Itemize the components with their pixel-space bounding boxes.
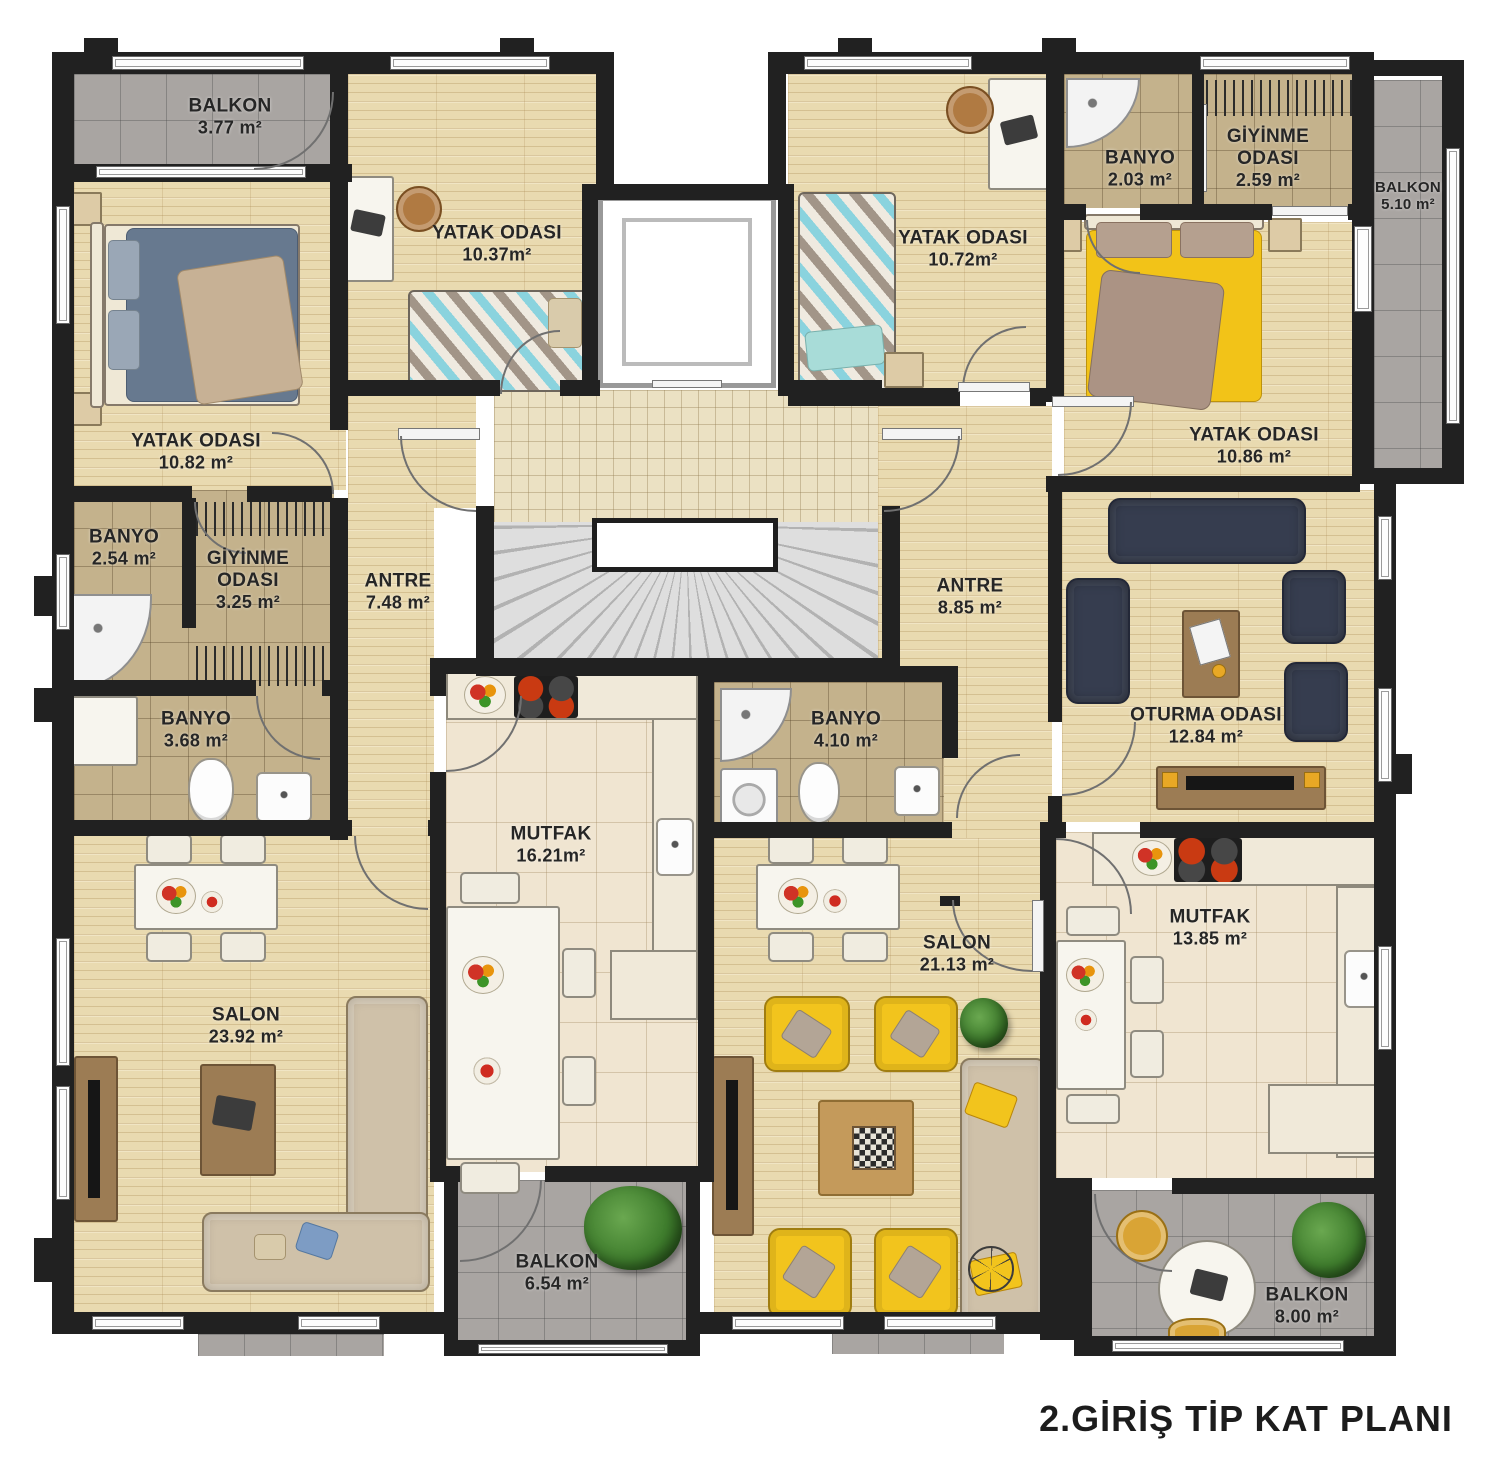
wall-segment <box>698 658 714 1182</box>
wall-segment <box>1046 52 1064 382</box>
window <box>298 1316 380 1330</box>
room-label-yatak-b2: YATAK ODASI 10.86 m² <box>1189 425 1319 468</box>
room-label-banyo-b1: BANYO 2.03 m² <box>1105 148 1175 191</box>
wall-segment <box>1048 492 1062 722</box>
pillow <box>108 310 140 370</box>
bed-blanket <box>1087 269 1226 411</box>
tv-screen <box>88 1080 100 1198</box>
chess-board <box>852 1126 896 1170</box>
tv-screen <box>1186 776 1294 790</box>
wall-segment <box>686 1166 700 1356</box>
wall-segment <box>714 822 952 838</box>
balcony-door <box>1354 226 1372 312</box>
window <box>1446 148 1460 424</box>
room-label-yatak-b1: YATAK ODASI 10.72m² <box>898 228 1028 271</box>
wall-segment <box>882 506 900 676</box>
room-balkon-b1-floor <box>1374 80 1442 474</box>
wall-segment <box>1352 60 1464 76</box>
room-label-yatak-a1: YATAK ODASI 10.82 m² <box>131 431 261 474</box>
wall-segment <box>596 52 614 198</box>
room-label-oturma: OTURMA ODASI 12.84 m² <box>1130 705 1282 748</box>
fruit-bowl <box>778 878 818 914</box>
fruit-bowl <box>462 956 504 994</box>
window <box>56 206 70 324</box>
door-leaf <box>1032 900 1044 972</box>
armchair-yellow <box>768 1228 852 1318</box>
window <box>732 1316 844 1330</box>
toilet <box>188 758 234 824</box>
pillow <box>254 1234 286 1260</box>
pillow <box>108 240 140 300</box>
armchair-yellow <box>764 996 850 1072</box>
fruit-bowl <box>1132 840 1172 876</box>
wall-segment <box>1140 822 1392 838</box>
window <box>1378 688 1392 782</box>
dining-chair <box>220 932 266 962</box>
window <box>1378 946 1392 1050</box>
wall-segment <box>1352 468 1464 484</box>
wall-segment <box>430 658 714 674</box>
room-label-balkon-tl: BALKON 3.77 m² <box>188 96 271 139</box>
wall-segment <box>560 380 600 396</box>
room-label-antre-b: ANTRE 8.85 m² <box>937 576 1004 619</box>
wall-segment <box>1192 74 1204 204</box>
wall-segment <box>582 184 794 200</box>
elevator-cabin <box>622 218 752 366</box>
room-label-banyo-a2: BANYO 3.68 m² <box>161 709 231 752</box>
wall-segment <box>348 380 500 396</box>
dining-chair <box>562 1056 596 1106</box>
armchair-yellow <box>874 1228 958 1318</box>
dining-chair <box>768 834 814 864</box>
wall-segment <box>1040 1178 1092 1340</box>
plate <box>1074 1008 1098 1032</box>
wall-segment <box>706 666 958 682</box>
wall-segment <box>444 1166 458 1356</box>
nightstand <box>1268 218 1302 252</box>
plant <box>1292 1202 1366 1278</box>
room-label-banyo-b2: BANYO 4.10 m² <box>811 709 881 752</box>
pilaster <box>1042 38 1076 56</box>
plate <box>200 890 224 914</box>
dining-chair <box>842 834 888 864</box>
window <box>1112 1340 1344 1352</box>
core-landing-floor <box>494 390 878 522</box>
dining-chair <box>562 948 596 998</box>
wall-segment <box>1046 476 1360 492</box>
window <box>478 1344 668 1354</box>
wall-segment <box>1030 388 1046 406</box>
dining-table <box>446 906 560 1160</box>
decor <box>1304 772 1320 788</box>
window <box>92 1316 184 1330</box>
pilaster <box>1394 754 1412 794</box>
room-label-balkon-b1: BALKON 5.10 m² <box>1370 179 1446 214</box>
bathtub <box>64 696 138 766</box>
stair-mid-landing <box>592 518 778 572</box>
dining-chair <box>146 834 192 864</box>
window <box>56 938 70 1066</box>
room-label-antre-a: ANTRE 7.48 m² <box>365 571 432 614</box>
window <box>96 166 306 178</box>
plate <box>822 888 848 914</box>
pilaster <box>838 38 872 56</box>
dining-chair <box>220 834 266 864</box>
sofa <box>1108 498 1306 564</box>
sink <box>894 766 940 816</box>
dining-chair <box>1130 1030 1164 1078</box>
dining-chair <box>1130 956 1164 1004</box>
room-label-giyinme-b: GİYİNME ODASI 2.59 m² <box>1205 126 1331 190</box>
wall-segment <box>1172 1178 1374 1194</box>
room-label-balkon-a2: BALKON 6.54 m² <box>515 1252 598 1295</box>
elevator-door <box>652 380 722 388</box>
wall-segment <box>942 682 958 758</box>
window <box>1200 56 1350 70</box>
wall-segment <box>778 198 794 388</box>
pillow <box>804 324 886 372</box>
bed-headboard <box>90 222 104 408</box>
wall-segment <box>582 198 598 388</box>
wall-segment <box>1374 474 1396 1356</box>
window <box>56 554 70 630</box>
wall-segment <box>330 498 348 840</box>
window <box>1378 516 1392 580</box>
window <box>56 1086 70 1200</box>
loveseat <box>1066 578 1130 704</box>
armchair-yellow <box>874 996 958 1072</box>
window <box>884 1316 996 1330</box>
stove <box>1174 838 1242 882</box>
dining-chair <box>146 932 192 962</box>
office-chair <box>946 86 994 134</box>
room-label-yatak-a2: YATAK ODASI 10.37m² <box>432 223 562 266</box>
plant <box>584 1186 682 1270</box>
ceiling-fan <box>968 1246 1014 1292</box>
wall-segment <box>788 388 960 406</box>
bed-blanket <box>176 254 304 405</box>
fruit-bowl <box>156 878 196 914</box>
room-label-salon-a: SALON 23.92 m² <box>209 1005 283 1048</box>
window <box>390 56 550 70</box>
window <box>112 56 304 70</box>
plate <box>472 1056 502 1086</box>
nightstand <box>884 352 924 388</box>
room-label-mutfak-b: MUTFAK 13.85 m² <box>1170 907 1251 950</box>
pilaster <box>84 38 118 56</box>
armchair <box>1284 662 1348 742</box>
wardrobe-hangers <box>1206 80 1352 116</box>
dining-chair <box>460 872 520 904</box>
decor <box>1162 772 1178 788</box>
decor <box>1212 664 1226 678</box>
wall-segment <box>1064 204 1086 220</box>
kitchen-counter <box>610 950 698 1020</box>
room-label-balkon-b2: BALKON 8.00 m² <box>1265 1285 1348 1328</box>
dining-chair <box>1066 1094 1120 1124</box>
plan-title: 2.GİRİŞ TİP KAT PLANI <box>1016 1398 1476 1440</box>
pillow <box>1180 222 1254 258</box>
room-label-mutfak-a: MUTFAK 16.21m² <box>511 824 592 867</box>
sliding-door <box>1272 206 1348 216</box>
dining-chair <box>768 932 814 962</box>
wall-segment <box>1040 838 1056 1178</box>
stove <box>514 676 578 718</box>
wall-segment <box>1140 204 1272 220</box>
pilaster <box>34 688 54 722</box>
sink <box>256 772 312 822</box>
fruit-bowl <box>1066 958 1104 992</box>
wall-segment <box>476 506 494 676</box>
wall-segment <box>330 382 348 430</box>
pilaster <box>34 576 54 616</box>
wall-segment <box>768 52 786 198</box>
wall-segment <box>74 680 256 696</box>
armchair <box>1282 570 1346 644</box>
toilet <box>798 762 840 824</box>
wall-segment <box>322 680 334 696</box>
wall-segment <box>1348 204 1360 220</box>
plant <box>960 998 1008 1048</box>
room-label-banyo-a1: BANYO 2.54 m² <box>89 527 159 570</box>
door-leaf <box>958 382 1030 392</box>
floor-plan: BALKON 3.77 m² YATAK ODASI 10.82 m² YATA… <box>0 0 1500 1483</box>
washing-machine <box>720 768 778 826</box>
room-label-giyinme-a: GİYİNME ODASI 3.25 m² <box>185 548 311 612</box>
wall-segment <box>1040 822 1066 838</box>
wall-segment <box>430 772 446 1182</box>
pilaster <box>34 1238 54 1282</box>
room-label-salon-b: SALON 21.13 m² <box>920 933 994 976</box>
wall-segment <box>62 820 352 836</box>
window <box>804 56 972 70</box>
exterior-ledge <box>198 1334 384 1356</box>
dining-chair <box>842 932 888 962</box>
tv-screen <box>726 1080 738 1210</box>
kitchen-sink <box>656 818 694 876</box>
wall-segment <box>74 486 192 502</box>
pilaster <box>500 38 534 56</box>
